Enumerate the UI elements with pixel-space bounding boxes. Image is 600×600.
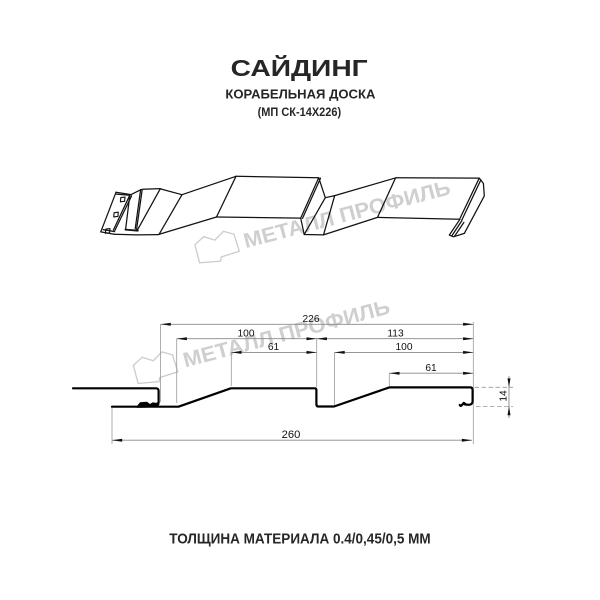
svg-text:260: 260 — [282, 429, 301, 441]
svg-text:100: 100 — [238, 328, 255, 339]
svg-text:113: 113 — [387, 328, 404, 339]
svg-text:100: 100 — [396, 342, 413, 353]
svg-text:226: 226 — [303, 314, 320, 325]
svg-text:ТОЛЩИНА МАТЕРИАЛА 0.4/0,45/0,5: ТОЛЩИНА МАТЕРИАЛА 0.4/0,45/0,5 ММ — [169, 531, 430, 548]
svg-text:61: 61 — [268, 342, 280, 353]
svg-text:(МП СК-14Х226): (МП СК-14Х226) — [258, 106, 342, 119]
svg-text:14: 14 — [499, 390, 510, 402]
svg-text:КОРАБЕЛЬНАЯ ДОСКА: КОРАБЕЛЬНАЯ ДОСКА — [225, 87, 376, 102]
svg-text:61: 61 — [425, 363, 437, 374]
svg-text:САЙДИНГ: САЙДИНГ — [231, 54, 368, 81]
